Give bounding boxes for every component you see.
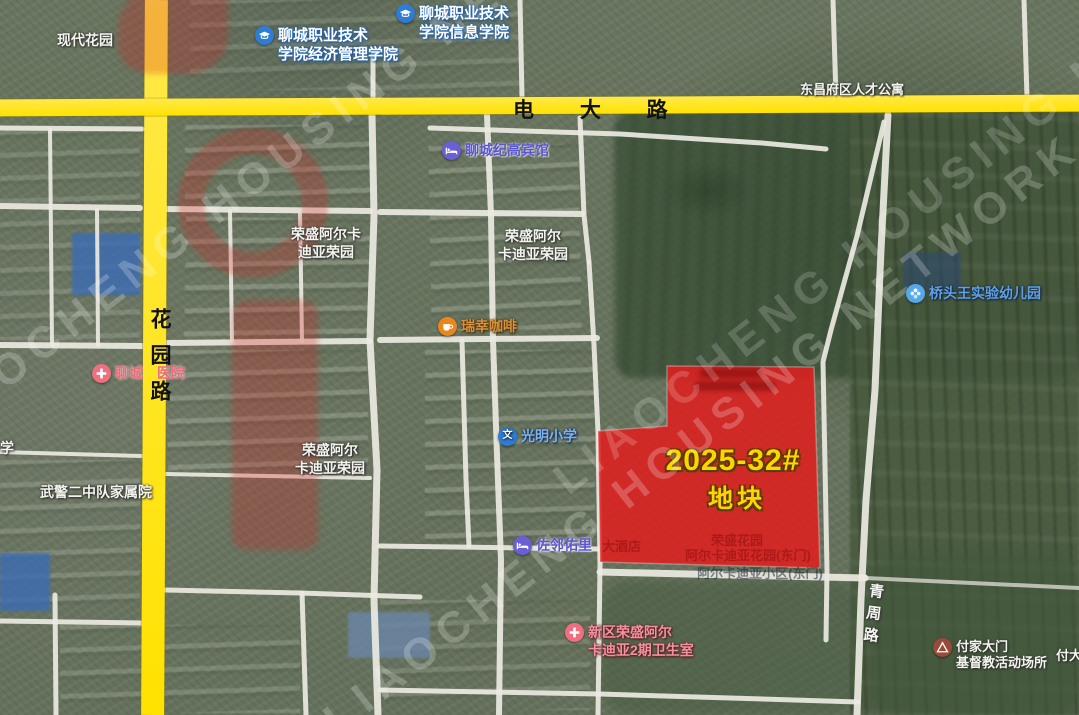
map-label-text: 佐邻佑里 (536, 537, 592, 555)
cross-icon (565, 623, 584, 642)
tent-icon (933, 638, 952, 657)
map-label-text: 聊城 医院 (115, 365, 185, 383)
map-label-text: 新区荣盛阿尔卡迪亚2期卫生室 (588, 624, 694, 659)
map-label-text: 荣盛阿尔卡迪亚荣园 (498, 228, 568, 263)
wen-icon: 文 (498, 427, 517, 446)
map-label-text: 学 (0, 440, 14, 458)
map-label-zuolin-youli-hotel[interactable]: 佐邻佑里 (513, 537, 592, 555)
pinwheel-icon (906, 284, 925, 303)
map-label-zuolin-suffix-obscured: 大酒店 (602, 539, 641, 555)
map-label-text: 大酒店 (602, 539, 641, 555)
map-label-rongsheng-arcadia-1[interactable]: 荣盛阿尔卡迪亚荣园 (291, 226, 361, 261)
map-label-text: 荣盛阿尔卡迪亚荣园 (295, 442, 365, 477)
map-label-rongsheng-arcadia-3[interactable]: 荣盛阿尔卡迪亚荣园 (295, 442, 365, 477)
map-label-lc-vocational-econ-school[interactable]: 聊城职业技术学院经济管理学院 (255, 27, 398, 65)
map-label-qiaotouwang-kindergarten[interactable]: 桥头王实验幼儿园 (906, 285, 1041, 303)
map-label-text: 现代花园 (57, 32, 113, 50)
cap-icon (396, 4, 415, 23)
satellite-map[interactable]: 电 大 路 花园路 青周路 2025-32# 地块 LIAOCHENG HOUS… (0, 0, 1079, 715)
map-label-fujiadamen-church[interactable]: 付家大门基督教活动场所 (933, 639, 1047, 672)
map-label-text: 荣盛阿尔卡迪亚荣园 (291, 226, 361, 261)
map-label-text: 桥头王实验幼儿园 (929, 285, 1041, 303)
map-label-text: 付大 (1056, 648, 1079, 664)
map-label-text: 聊城职业技术学院信息学院 (419, 5, 509, 43)
map-label-text: 聊城纪高宾馆 (465, 142, 549, 160)
map-label-text: 光明小学 (521, 428, 577, 446)
bed-icon (513, 536, 532, 555)
map-label-text: 付家大门基督教活动场所 (956, 639, 1047, 672)
map-label-community-clinic[interactable]: 新区荣盛阿尔卡迪亚2期卫生室 (565, 624, 694, 659)
bed-icon (442, 141, 461, 160)
map-label-xiandai-huayuan[interactable]: 现代花园 (57, 32, 113, 50)
map-label-jigao-hotel[interactable]: 聊城纪高宾馆 (442, 142, 549, 160)
map-label-parcel-obscured-2: 阿尔卡迪亚花园(东门) (685, 548, 811, 564)
cup-icon (438, 317, 457, 336)
map-label-guangming-school[interactable]: 文光明小学 (498, 428, 577, 446)
map-label-text: 荣盛花园 (711, 533, 763, 549)
map-label-text: 阿尔卡迪亚小区(东门) (697, 566, 823, 582)
map-label-below-parcel-obscured: 阿尔卡迪亚小区(东门) (697, 566, 823, 582)
map-label-text: 聊城职业技术学院经济管理学院 (278, 27, 398, 65)
map-label-text: 阿尔卡迪亚花园(东门) (685, 548, 811, 564)
map-label-parcel-obscured-1: 荣盛花园 (711, 533, 763, 549)
map-label-fuda-partial[interactable]: 付大 (1056, 648, 1079, 664)
cross-icon (92, 364, 111, 383)
map-label-liaocheng-hospital[interactable]: 聊城 医院 (92, 365, 185, 383)
map-label-text: 瑞幸咖啡 (461, 318, 517, 336)
labels-layer: 现代花园聊城职业技术学院经济管理学院聊城职业技术学院信息学院东昌府区人才公寓聊城… (0, 0, 1079, 715)
map-label-rongsheng-arcadia-2[interactable]: 荣盛阿尔卡迪亚荣园 (498, 228, 568, 263)
map-label-text: 东昌府区人才公寓 (800, 82, 904, 98)
map-label-lc-vocational-info-school[interactable]: 聊城职业技术学院信息学院 (396, 5, 509, 43)
map-label-wujing-family-compound[interactable]: 武警二中队家属院 (40, 484, 152, 502)
map-label-luckin-coffee[interactable]: 瑞幸咖啡 (438, 318, 517, 336)
map-label-talent-apartment[interactable]: 东昌府区人才公寓 (800, 82, 904, 98)
map-label-text: 武警二中队家属院 (40, 484, 152, 502)
cap-icon (255, 26, 274, 45)
map-label-xue-partial[interactable]: 学 (0, 440, 14, 458)
